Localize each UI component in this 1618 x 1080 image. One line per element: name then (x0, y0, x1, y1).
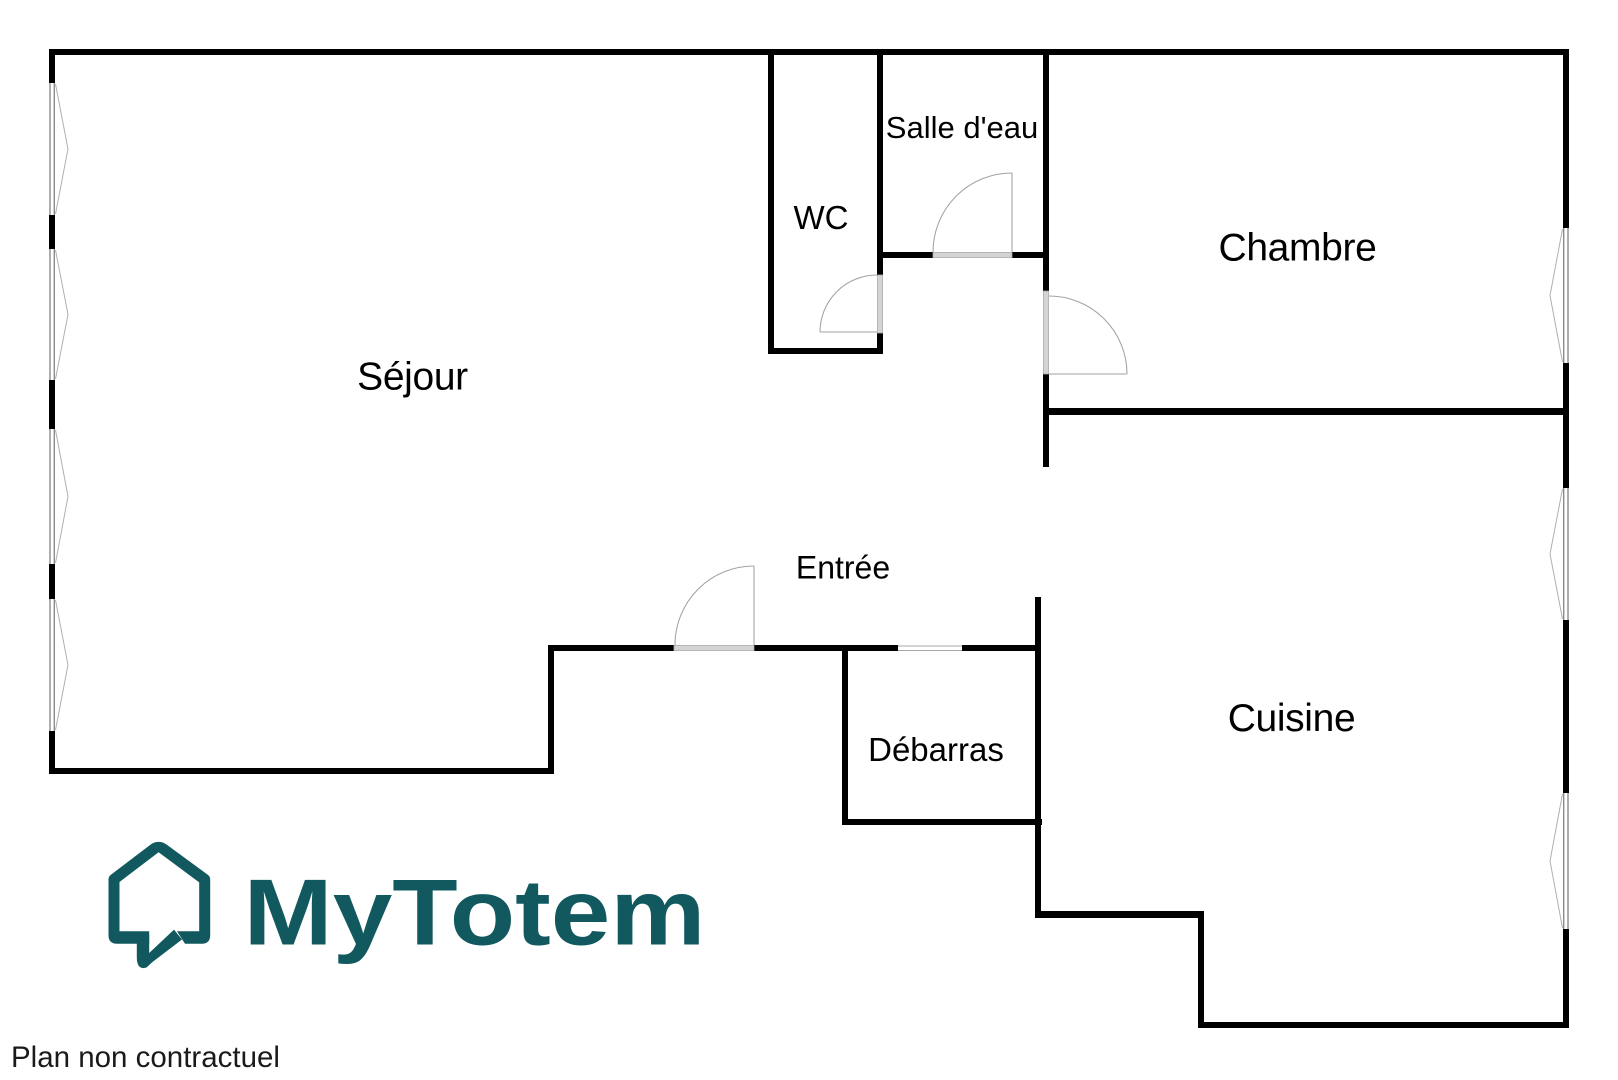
svg-text:Séjour: Séjour (357, 356, 468, 399)
svg-text:WC: WC (794, 199, 849, 236)
svg-text:Salle d'eau: Salle d'eau (886, 110, 1038, 145)
svg-text:Chambre: Chambre (1219, 227, 1377, 270)
svg-text:Débarras: Débarras (868, 731, 1004, 768)
svg-text:Plan non contractuel: Plan non contractuel (11, 1041, 280, 1074)
svg-text:Entrée: Entrée (796, 550, 890, 586)
svg-text:Cuisine: Cuisine (1228, 697, 1356, 740)
svg-text:MyTotem: MyTotem (244, 860, 706, 965)
